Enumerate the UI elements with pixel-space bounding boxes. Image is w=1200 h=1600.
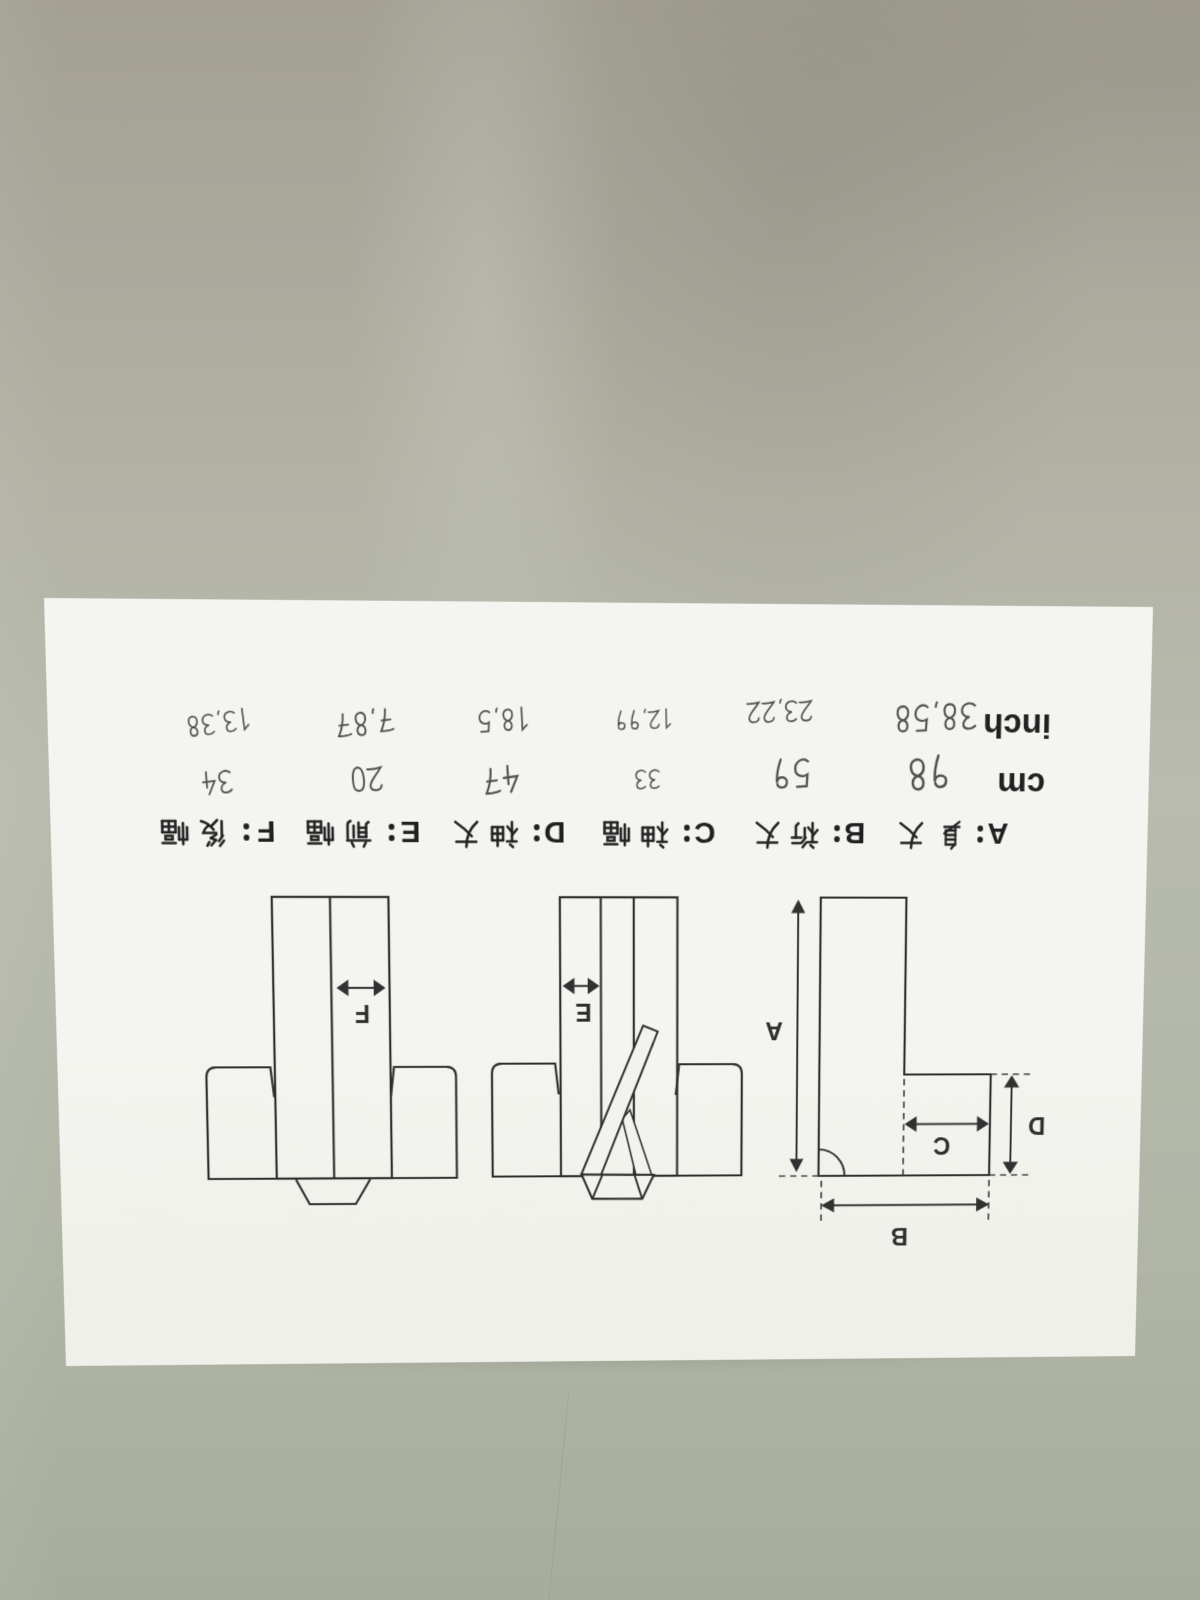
svg-text:C: C: [933, 1131, 951, 1158]
svg-text:C: C: [694, 815, 715, 849]
svg-text:F: F: [355, 999, 371, 1026]
svg-text:A: A: [987, 816, 1009, 850]
svg-text:D: D: [544, 815, 566, 849]
svg-text:E: E: [400, 815, 420, 849]
svg-text:A: A: [765, 1016, 783, 1043]
svg-text:E: E: [575, 998, 591, 1025]
svg-text:inch: inch: [983, 706, 1052, 745]
svg-text:B: B: [891, 1222, 909, 1249]
svg-text:B: B: [844, 816, 865, 850]
svg-text:F: F: [257, 814, 276, 848]
svg-text:D: D: [1028, 1111, 1046, 1138]
svg-text:cm: cm: [997, 765, 1045, 804]
